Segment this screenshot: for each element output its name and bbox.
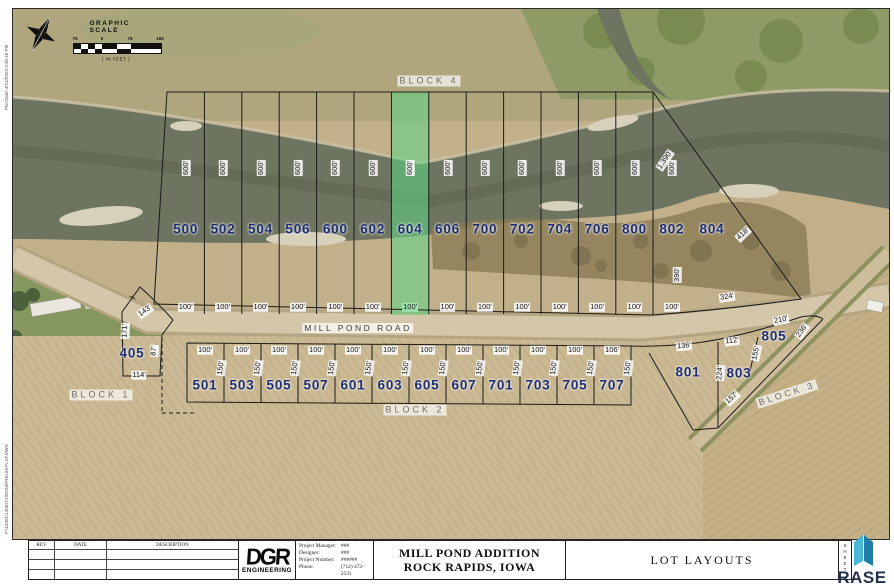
- lot-507-frontage: 100': [308, 346, 324, 355]
- lot-703-depth: 150': [549, 360, 559, 377]
- project-info: Project Manager:### Designer:### Project…: [296, 541, 374, 579]
- lot-606-frontage: 100': [440, 303, 456, 312]
- lot-504-frontage: 100': [253, 303, 269, 312]
- lot-706-frontage: 100': [589, 303, 605, 312]
- project-manager-value: ###: [341, 543, 349, 550]
- lot-507-depth: 150': [327, 360, 337, 377]
- block-1-label: BLOCK 1: [69, 390, 132, 401]
- lot-602-frontage: 100': [365, 303, 381, 312]
- road-label: MILL POND ROAD: [302, 323, 413, 333]
- description-header: DESCRIPTION: [107, 541, 238, 550]
- lot-601-number: 601: [341, 378, 366, 393]
- lot-605-frontage: 100': [419, 346, 435, 355]
- lot-605-number: 605: [415, 378, 440, 393]
- project-number-value: ######: [341, 557, 357, 564]
- lot-600-frontage: 100': [327, 303, 343, 312]
- lot-500-frontage: 100': [178, 303, 194, 312]
- lot-700-depth: 600': [481, 160, 490, 176]
- dim-805-road: 210': [772, 314, 789, 326]
- lot-800-frontage: 100': [627, 303, 643, 312]
- lot-603-depth: 150': [401, 360, 411, 377]
- lot-501-number: 501: [193, 378, 218, 393]
- firm-logo: DGR ENGINEERING: [239, 541, 296, 579]
- rev-cell: [29, 570, 55, 579]
- rev-cell: [107, 550, 238, 560]
- rase-watermark: RASE: [832, 534, 892, 588]
- rev-cell: [55, 550, 107, 560]
- lot-701-frontage: 100': [493, 346, 509, 355]
- lot-702-depth: 600': [518, 160, 527, 176]
- lot-703-frontage: 100': [530, 346, 546, 355]
- lot-704-number: 704: [547, 222, 572, 237]
- lot-702-number: 702: [510, 222, 535, 237]
- title-block: REV DATE DESCRIPTION DGR ENGINEERING Pro…: [28, 540, 852, 580]
- block-3-label: BLOCK 3: [755, 379, 818, 409]
- rev-cell: [29, 560, 55, 570]
- lot-502-frontage: 100': [215, 303, 231, 312]
- lot-501-depth: 150': [216, 360, 226, 377]
- phone-value: (712) 472-2531: [341, 564, 371, 578]
- rev-cell: [55, 570, 107, 579]
- lot-701-number: 701: [489, 378, 514, 393]
- lot-707-number: 707: [600, 378, 625, 393]
- dim-405-e: 87': [149, 345, 158, 357]
- lot-704-frontage: 100': [552, 303, 568, 312]
- lot-605-depth: 150': [438, 360, 448, 377]
- lot-702-frontage: 100': [514, 303, 530, 312]
- rev-cell: [107, 560, 238, 570]
- lot-701-depth: 150': [512, 360, 522, 377]
- lot-506-frontage: 100': [290, 303, 306, 312]
- revision-table: REV DATE DESCRIPTION: [29, 541, 239, 579]
- lot-602-depth: 600': [368, 160, 377, 176]
- rev-header: REV: [29, 541, 55, 550]
- lot-705-number: 705: [563, 378, 588, 393]
- project-title-line2: ROCK RAPIDS, IOWA: [404, 560, 536, 574]
- lot-604-number: 604: [398, 222, 423, 237]
- lot-601-frontage: 100': [345, 346, 361, 355]
- dim-804-se: 418': [734, 225, 751, 242]
- lot-707-frontage: 106': [604, 346, 620, 355]
- block-4-label: BLOCK 4: [397, 76, 460, 87]
- lot-506-number: 506: [285, 222, 310, 237]
- project-manager-label: Project Manager:: [299, 543, 341, 550]
- designer-label: Designer:: [299, 550, 341, 557]
- lot-800-depth: 600': [630, 160, 639, 176]
- lot-802-frontage: 100': [664, 303, 680, 312]
- rase-logo-text: RASE: [832, 569, 892, 586]
- lot-601-depth: 150': [364, 360, 374, 377]
- lot-602-number: 602: [360, 222, 385, 237]
- lot-804-number: 804: [700, 222, 725, 237]
- lot-803-number: 803: [727, 366, 752, 381]
- lot-802-number: 802: [659, 222, 684, 237]
- plan-sheet: Plot Date: 4/14/2023 3:36:48 PM P:\16301…: [0, 0, 894, 588]
- lot-506-depth: 600': [294, 160, 303, 176]
- dim-405-arc: 143': [136, 303, 154, 319]
- dim-805-ne: 236': [794, 322, 810, 340]
- plot-date-note: Plot Date: 4/14/2023 3:36:48 PM: [4, 45, 9, 110]
- lot-607-number: 607: [452, 378, 477, 393]
- lot-704-depth: 600': [555, 160, 564, 176]
- dim-804-road: 324': [719, 292, 736, 303]
- designer-value: ###: [341, 550, 349, 557]
- rev-cell: [55, 560, 107, 570]
- file-path-note: P:\16301\1306271\DGN\PRELIM PLAT.DWG: [4, 444, 9, 534]
- lot-503-number: 503: [230, 378, 255, 393]
- dim-803-se: 157': [723, 390, 741, 407]
- lot-606-depth: 600': [443, 160, 452, 176]
- lot-600-depth: 600': [331, 160, 340, 176]
- lot-805-number: 805: [762, 329, 787, 344]
- lot-700-frontage: 100': [477, 303, 493, 312]
- project-title: MILL POND ADDITION ROCK RAPIDS, IOWA: [374, 541, 566, 579]
- lot-606-number: 606: [435, 222, 460, 237]
- project-title-line1: MILL POND ADDITION: [399, 546, 540, 560]
- lot-706-number: 706: [585, 222, 610, 237]
- lot-405-number: 405: [120, 346, 145, 361]
- lot-705-depth: 150': [586, 360, 596, 377]
- lot-507-number: 507: [304, 378, 329, 393]
- lot-501-frontage: 100': [197, 346, 213, 355]
- dim-405-w: 171': [120, 323, 129, 339]
- lot-707-depth: 150': [623, 360, 633, 377]
- lot-604-depth: 600': [406, 160, 415, 176]
- lot-600-number: 600: [323, 222, 348, 237]
- dim-405-s: 114': [131, 371, 146, 380]
- lot-700-number: 700: [472, 222, 497, 237]
- dim-805-w: 155': [750, 344, 762, 361]
- map-canvas: 500600'100'502600'100'504600'100'506600'…: [13, 9, 889, 539]
- lot-504-depth: 600': [256, 160, 265, 176]
- lot-500-number: 500: [173, 222, 198, 237]
- lot-801-number: 801: [676, 365, 701, 380]
- lot-502-depth: 600': [219, 160, 228, 176]
- lot-604-frontage: 100': [402, 303, 418, 312]
- firm-logo-text: DGR: [245, 546, 289, 567]
- sheet-title: LOT LAYOUTS: [566, 541, 839, 579]
- phone-label: Phone:: [299, 564, 341, 578]
- rase-logo-icon: [849, 534, 877, 568]
- lot-703-number: 703: [526, 378, 551, 393]
- dim-803-w: 224': [715, 365, 725, 382]
- lot-503-frontage: 100': [234, 346, 250, 355]
- dim-801-road: 136': [676, 341, 693, 351]
- dim-803-road: 112': [724, 336, 740, 346]
- lot-802-depth: 600': [668, 160, 677, 176]
- rev-cell: [107, 570, 238, 579]
- lot-503-depth: 150': [253, 360, 263, 377]
- lot-705-frontage: 100': [567, 346, 583, 355]
- block-2-label: BLOCK 2: [383, 405, 446, 416]
- lot-504-number: 504: [248, 222, 273, 237]
- lot-607-frontage: 100': [456, 346, 472, 355]
- lot-505-number: 505: [267, 378, 292, 393]
- lot-603-frontage: 100': [382, 346, 398, 355]
- lot-706-depth: 600': [593, 160, 602, 176]
- lot-505-frontage: 100': [271, 346, 287, 355]
- lot-607-depth: 150': [475, 360, 485, 377]
- lot-500-depth: 600': [181, 160, 190, 176]
- rev-cell: [29, 550, 55, 560]
- project-number-label: Project Number:: [299, 557, 341, 564]
- lot-505-depth: 150': [290, 360, 300, 377]
- dim-804-w: 390': [673, 267, 682, 283]
- date-header: DATE: [55, 541, 107, 550]
- lot-502-number: 502: [211, 222, 236, 237]
- lot-603-number: 603: [378, 378, 403, 393]
- lot-800-number: 800: [622, 222, 647, 237]
- map-viewport: GRAPHIC SCALE 75 0 75 150 ( IN FEET ) 50…: [12, 8, 890, 540]
